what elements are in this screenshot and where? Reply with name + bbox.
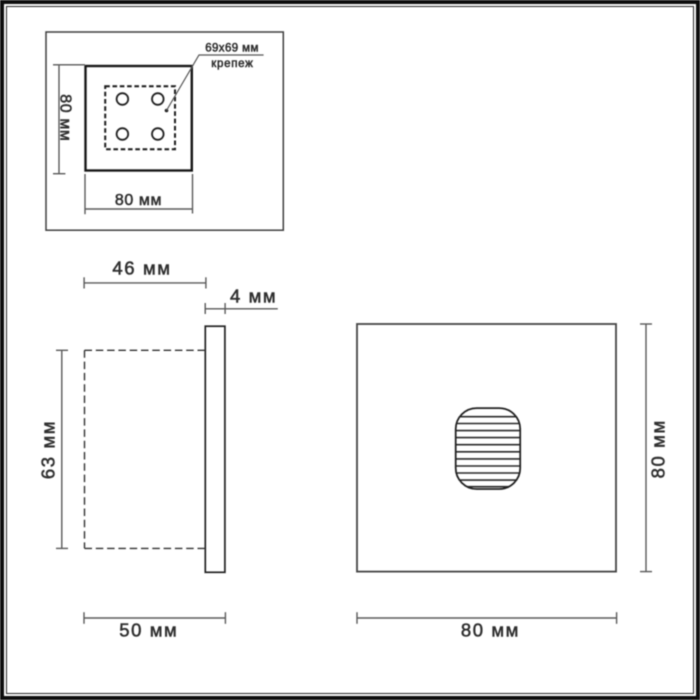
svg-text:80 мм: 80 мм: [115, 192, 162, 209]
svg-text:80 мм: 80 мм: [461, 619, 520, 640]
svg-text:46 мм: 46 мм: [112, 258, 171, 279]
svg-text:50 мм: 50 мм: [119, 619, 178, 640]
svg-text:80 мм: 80 мм: [648, 419, 669, 478]
svg-text:63 мм: 63 мм: [37, 420, 58, 479]
svg-text:4 мм: 4 мм: [230, 285, 277, 306]
svg-text:69x69 мм: 69x69 мм: [205, 43, 259, 55]
svg-text:80 мм: 80 мм: [57, 94, 74, 141]
svg-text:крепеж: крепеж: [211, 58, 253, 70]
